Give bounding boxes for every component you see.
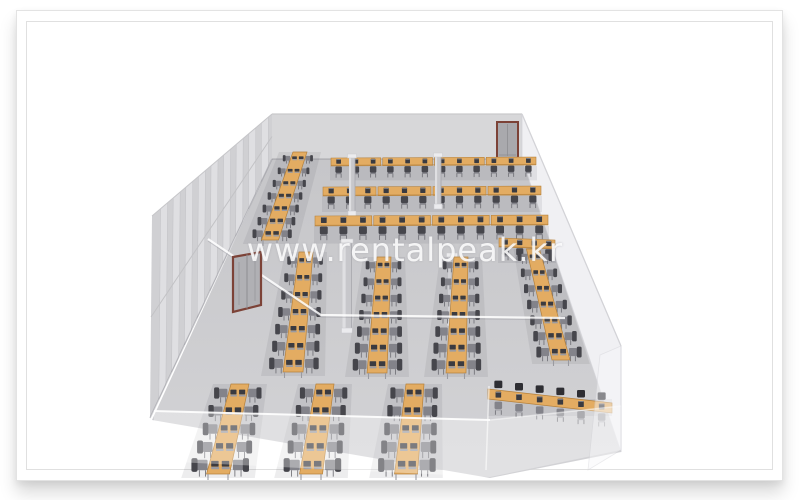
pillar	[341, 239, 353, 333]
room-3d-render	[0, 0, 800, 500]
back-door	[497, 122, 518, 158]
page: www.rentalpeak.kr	[0, 0, 800, 500]
wall-panel	[197, 171, 205, 318]
wall-panel	[210, 160, 218, 291]
wall-panel	[184, 181, 192, 345]
wall-panel	[172, 192, 181, 372]
door-back	[497, 122, 518, 158]
wall-panel	[223, 149, 231, 263]
door-left	[233, 252, 261, 312]
